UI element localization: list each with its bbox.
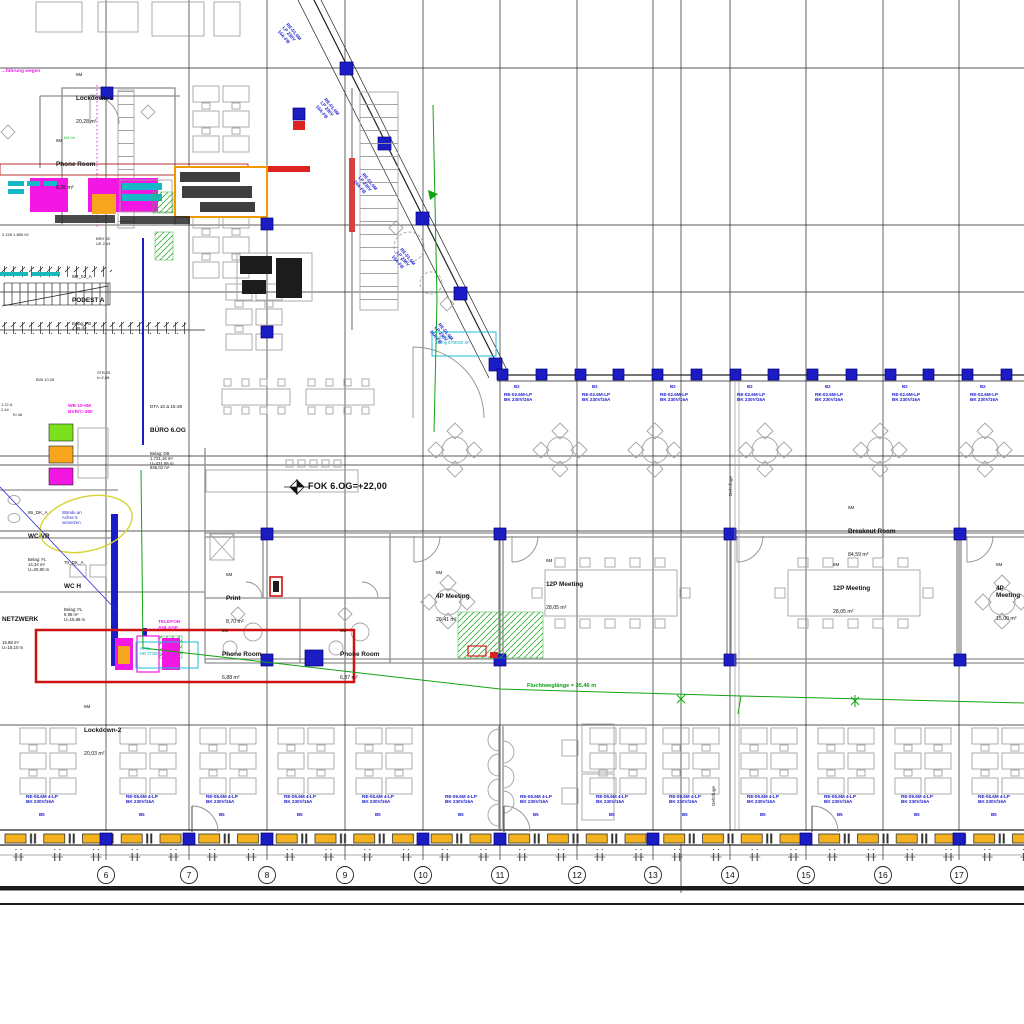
electrical-annotation: RE-05.6M 4-LP BK 230V/16A [747,794,791,805]
room-label-wc-h: 70_DK_A WC H Belag: FL 8,98 m² U=15,88 m [64,542,85,640]
grid-bubble-13: 13 [643,870,663,880]
electrical-annotation: RE-05.6M 4-LP BK 230V/16A [978,794,1022,805]
circuit-tag: B5 [533,812,539,817]
grid-bubble-16: 16 [873,870,893,880]
electrical-annotation: RE-02.6M-LP BK 230V/16A [660,392,704,403]
room-area: 6,87 m² [340,676,379,682]
room-label-phone-room-top: 6M Phone Room 6,35 m² [56,120,95,210]
grid-bubble-17: 17 [949,870,969,880]
room-extra: Belag: FL 8,98 m² U=15,88 m [64,608,85,622]
circuit-tag: B2 [980,384,986,389]
room-tag: 6M [226,572,244,577]
markup-note-top: …führung wegen [1,69,40,75]
markup-note-telefon: TELEFON ANLAGE [158,620,180,631]
electrical-annotation: RE-05.6M 4-LP BK 230V/16A [284,794,328,805]
floor-plan-viewport[interactable]: 6M Lockdown-1 20,28 m² 6M Phone Room 6,3… [0,0,1024,1024]
room-area: 26,41 m² [436,618,470,624]
room-name: Breakout Room [848,528,896,535]
grid-bubble-10: 10 [413,870,433,880]
room-name: WC H [64,583,85,590]
room-extra: Belag: FL 14,34 m² U=20,80 m [28,558,50,572]
room-name: PODEST A [72,297,104,304]
dim-text: STB 25 h=2,58 [97,370,110,380]
room-area: 6,88 m² [222,676,261,682]
electrical-annotation: RE-05.6M 4-LP BK 230V/16A [362,794,406,805]
room-label-podest-a: 6M_02_A PODEST A Belag: PB 4,85 m² [72,256,104,350]
room-tag: 6M [76,72,113,77]
room-name: 12P Meeting [833,585,870,592]
room-tag: 70_DK_A [64,560,85,565]
room-label-netzwerk: NETZWERK 19,88 m² U=18,10 m [2,598,38,669]
circuit-tag: B5 [219,812,225,817]
electrical-annotation: RE-05.6M 4-LP BK 230V/16A [901,794,945,805]
room-area: 20,03 m² [84,752,121,758]
north-facade-band [497,369,1024,381]
electrical-annotation: RE-05.6M 4-LP BK 230V/16A [445,794,489,805]
circuit-tag: B5 [375,812,381,817]
electrical-annotation: RE-05.6M 4-LP BK 230V/16A [26,794,70,805]
circuit-tag: B5 [914,812,920,817]
room-tag: 6M [340,628,379,633]
green-micro-note: 6M-04 [64,136,75,140]
electrical-annotation: RE-05.6M 4-LP BK 230V/16A [206,794,250,805]
electrical-annotation: RE-02.6M-LP BK 230V/16A [504,392,548,403]
room-label-buero: DTA 10 Δ 15-26 BÜRO 6.OG Belag: DB 1.721… [150,386,186,489]
grid-bubble-8: 8 [257,870,277,880]
electrical-annotation: RE-02.6M-LP BK 230V/16A [582,392,626,403]
room-extra: 19,88 m² U=18,10 m [2,641,38,651]
room-label-12p-meeting-a: 6M 12P Meeting 28,05 m² [546,540,583,630]
electrical-annotation: RE-02.6M-LP BK 230V/16A [892,392,936,403]
dim-text: 1.22 A 2.44 [1,402,12,412]
room-name: Phone Room [56,161,95,168]
circuit-tag: B5 [837,812,843,817]
sprinkler-note: SPKL NR 07/08 B [140,646,162,657]
room-tag: 6M [996,562,1024,567]
electrical-annotation: RE-05.6M 4-LP BK 230V/16A [669,794,713,805]
circuit-tag: B2 [747,384,753,389]
electrical-annotation: RE-02.6M-LP BK 230V/16A [970,392,1014,403]
room-tag: 65_DK_A [28,510,50,515]
dim-text: 2.155 1.885 92 [2,232,29,237]
diagonal-facade [296,0,508,378]
room-name: 4P Meeting [996,585,1024,599]
circuit-tag: B5 [297,812,303,817]
grid-bubble-6: 6 [96,870,116,880]
room-tag: DTA 10 Δ 15-26 [150,404,186,409]
electrical-annotation: RE-02.6M-LP BK 230V/16A [737,392,781,403]
level-annotation: FOK 6.OG=+22,00 [308,481,387,491]
room-area: 28,05 m² [833,610,870,616]
circuit-tag: B5 [458,812,464,817]
room-tag: 6M_02_A [72,274,104,279]
grid-bubble-9: 9 [335,870,355,880]
circuit-tag: B2 [902,384,908,389]
electrical-annotation: RE-05.6M 4-LP BK 230V/16A [824,794,868,805]
room-label-phone-room-b: 6M Phone Room 6,87 m² [340,610,379,700]
south-facade [0,830,1024,905]
electrical-annotation: RE-05.6M 4-LP BK 230V/16A [126,794,170,805]
grid-bubble-14: 14 [720,870,740,880]
room-name: Phone Room [222,651,261,658]
room-name: NETZWERK [2,616,38,623]
room-extra: Belag: DB 1.721,16 m² U=431,85 m 846,02 … [150,452,186,471]
electrical-annotation: RE-05.6M 4-LP BK 230V/16A [520,794,564,805]
corridor-walls [205,382,1024,830]
grid-bubble-15: 15 [796,870,816,880]
circuit-tag: B2 [514,384,520,389]
room-label-4p-meeting-a: 6M 4P Meeting 26,41 m² [436,552,470,642]
room-area: 15,00 m² [996,617,1024,623]
escape-route-label: Fluchtweglänge = 35,46 m [527,683,596,689]
room-tag: 6M [56,138,95,143]
electrical-annotation: RE-02.6M-LP BK 230V/16A [815,392,859,403]
room-area: 6,35 m² [56,186,95,192]
circuit-tag: B2 [592,384,598,389]
room-name: Print [226,595,244,602]
room-name: BÜRO 6.OG [150,427,186,434]
room-label-phone-room-a: 6M Phone Room 6,88 m² [222,610,261,700]
room-extra: Belag: PB 4,85 m² [72,322,104,332]
circuit-tag: B5 [991,812,997,817]
room-tag: 6M [848,505,896,510]
room-name: Lockdown-1 [76,95,113,102]
dim-text: Kl 46 [13,412,22,417]
circuit-tag: B5 [682,812,688,817]
room-tag: 6M [546,558,583,563]
room-tag: 6M [222,628,261,633]
revision-cloud-note: Wände an Achse 5 versetzen [62,510,112,525]
room-name: Phone Room [340,651,379,658]
circuit-tag: B5 [39,812,45,817]
room-tag: 6M [833,562,870,567]
dim-text: BRH 92 UK 2,44 [96,236,110,246]
circuit-tag: B5 [760,812,766,817]
level-marker [284,479,310,495]
grid-bubble-7: 7 [179,870,199,880]
room-tag: 6M [84,704,121,709]
room-tag: 6M [436,570,470,575]
room-name: 4P Meeting [436,593,470,600]
circuit-tag: B5 [139,812,145,817]
room-label-wc-vr: 65_DK_A WC-VR Belag: FL 14,34 m² U=20,80… [28,492,50,590]
markup-note-wb: WB 10-6M BVR/C-380 [68,404,93,415]
grid-bubble-12: 12 [567,870,587,880]
room-label-12p-meeting-b: 6M 12P Meeting 28,05 m² [833,544,870,634]
electrical-annotation: RE-05.6M 4-LP BK 230V/16A [596,794,640,805]
dim-text: B05 10,28 [36,377,54,382]
circuit-tag: B2 [670,384,676,389]
room-name: 12P Meeting [546,581,583,588]
circuit-tag: B2 [825,384,831,389]
room-area: 28,05 m² [546,606,583,612]
room-name: Lockdown-2 [84,727,121,734]
grid-bubble-11: 11 [490,870,510,880]
circuit-tag: B5 [609,812,615,817]
room-name: WC-VR [28,533,50,540]
expansion-joint-label: Dehnfuge [728,446,733,496]
room-label-lockdown-2: 6M Lockdown-2 20,03 m² [84,686,121,776]
room-label-4p-meeting-b: 6M 4P Meeting 15,00 m² [996,544,1024,641]
